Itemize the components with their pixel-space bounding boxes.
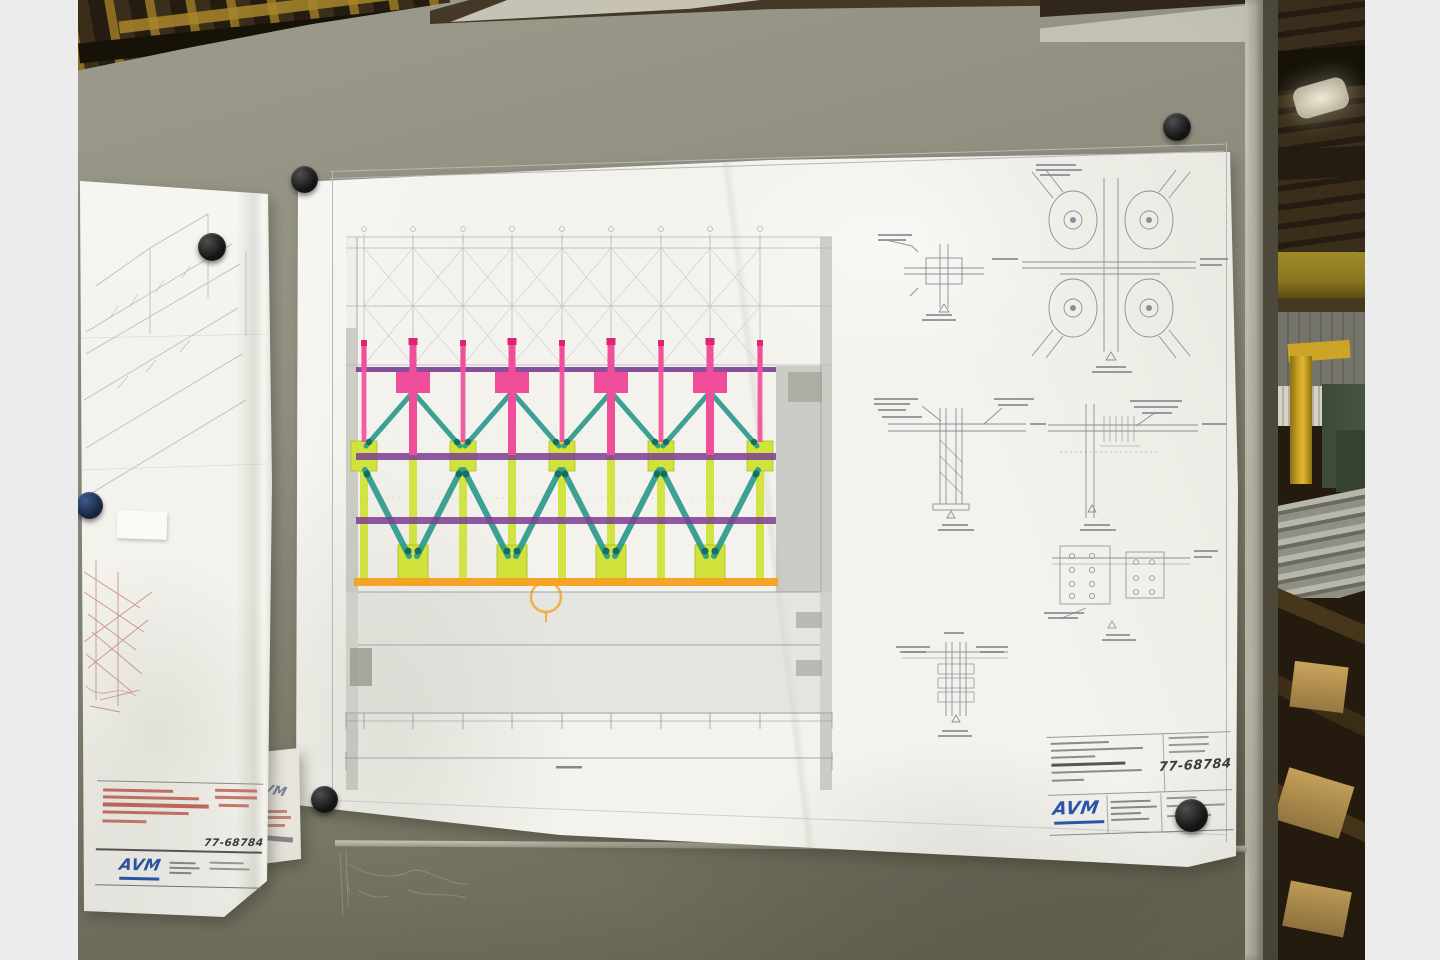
block-row bbox=[169, 867, 199, 870]
avm-logo: AVM bbox=[118, 857, 162, 874]
block-row bbox=[209, 868, 249, 871]
warehouse-roof bbox=[1278, 0, 1365, 258]
title-block: 77-68784 AVM bbox=[1044, 719, 1238, 845]
letterbox-left bbox=[0, 0, 78, 960]
detail-column-beam bbox=[888, 406, 1026, 518]
green-cabinet bbox=[1336, 430, 1365, 492]
magnet bbox=[198, 233, 226, 261]
block-row bbox=[1169, 736, 1209, 739]
block-divider bbox=[1106, 795, 1108, 833]
red-sketch bbox=[84, 560, 152, 712]
title-row bbox=[215, 796, 257, 800]
highlighted-truss bbox=[351, 338, 778, 622]
iso-wireframe-drawing bbox=[78, 160, 274, 720]
block-row bbox=[1051, 761, 1125, 766]
avm-logo: AVM bbox=[1052, 799, 1101, 819]
magnet bbox=[76, 492, 103, 519]
chalk-scribble bbox=[340, 850, 468, 914]
handwritten-sheet-number: 77-68784 bbox=[203, 837, 264, 849]
chalk-marks bbox=[338, 846, 658, 926]
title-row bbox=[103, 802, 209, 808]
block-row bbox=[1169, 743, 1209, 746]
block-row bbox=[1111, 806, 1157, 809]
title-row bbox=[219, 804, 249, 808]
block-row bbox=[210, 862, 244, 865]
pin-holes bbox=[1070, 217, 1152, 311]
detail-annotations bbox=[874, 164, 1228, 737]
magnet bbox=[311, 786, 338, 813]
detail-cross-connection bbox=[1048, 404, 1198, 518]
block-row bbox=[1169, 750, 1205, 753]
sticker bbox=[117, 510, 168, 540]
detail-bolt-group bbox=[1052, 546, 1190, 628]
block-divider bbox=[1160, 793, 1162, 831]
title-row bbox=[103, 810, 189, 815]
block-row bbox=[1052, 769, 1142, 774]
left-title-block: 77-68784 AVM bbox=[91, 780, 270, 906]
board-side-edge bbox=[1245, 0, 1263, 960]
detail-plate-connection bbox=[886, 240, 984, 312]
block-row bbox=[170, 862, 196, 865]
machine-mast bbox=[1290, 356, 1312, 484]
roof-beam-icon bbox=[1278, 145, 1365, 180]
detail-stacked-plates bbox=[902, 642, 1008, 722]
block-border bbox=[95, 884, 261, 888]
handwritten-sheet-number: 77-68784 bbox=[1149, 756, 1232, 775]
wood-block bbox=[1289, 661, 1348, 713]
block-border bbox=[1050, 829, 1234, 836]
block-row bbox=[1052, 779, 1084, 782]
elevation-drawing bbox=[333, 220, 838, 790]
overhead-crane-beam bbox=[1278, 252, 1365, 298]
wireframe-lines bbox=[80, 214, 268, 494]
avm-logo-bar bbox=[1054, 820, 1104, 825]
title-row bbox=[215, 789, 257, 793]
board-side-shadow bbox=[1263, 0, 1278, 960]
block-row bbox=[169, 872, 191, 874]
crane-shadow bbox=[1278, 298, 1365, 312]
block-row bbox=[1111, 818, 1149, 821]
block-row bbox=[1051, 747, 1143, 752]
detail-pin-joint bbox=[1022, 170, 1196, 360]
workshop-photo: AVM bbox=[0, 0, 1440, 960]
magnet bbox=[291, 166, 318, 193]
block-row bbox=[1111, 800, 1151, 803]
title-row bbox=[103, 788, 173, 792]
warehouse-background bbox=[1278, 0, 1365, 960]
magnet bbox=[1175, 799, 1208, 832]
block-border bbox=[1048, 789, 1232, 796]
title-row bbox=[103, 795, 199, 800]
letterbox-right bbox=[1365, 0, 1440, 960]
magnet bbox=[1163, 113, 1191, 141]
block-row bbox=[1111, 812, 1141, 815]
block-row bbox=[1051, 755, 1095, 758]
block-row bbox=[1051, 741, 1109, 745]
title-row bbox=[102, 819, 146, 823]
avm-logo-bar bbox=[119, 877, 159, 880]
